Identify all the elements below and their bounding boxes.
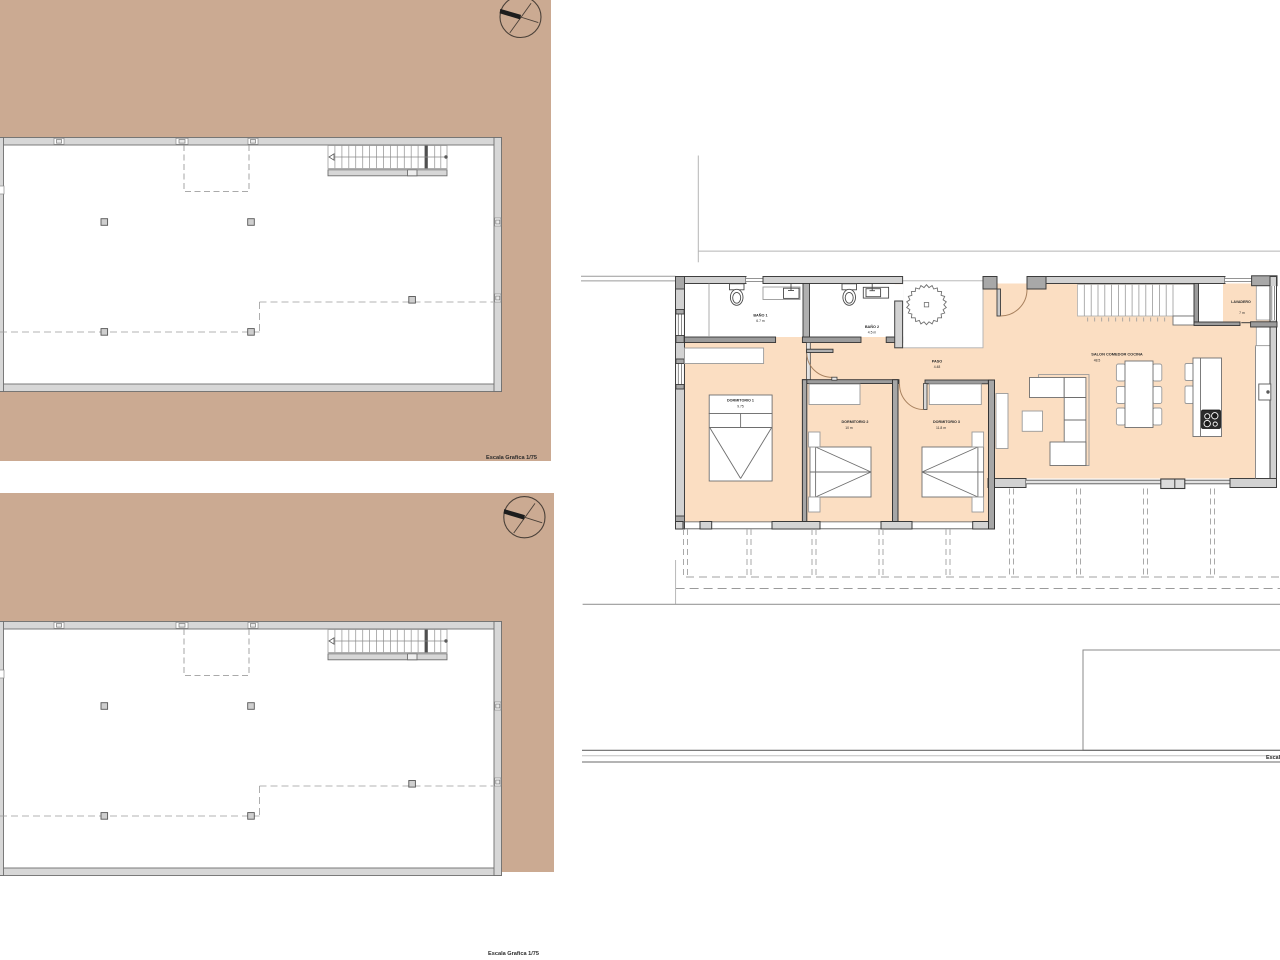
svg-text:4.48: 4.48: [934, 365, 941, 369]
svg-text:6.7 m: 6.7 m: [756, 319, 765, 323]
svg-text:BAÑO 1: BAÑO 1: [753, 313, 767, 318]
svg-text:DORMITORIO 3: DORMITORIO 3: [933, 420, 960, 424]
svg-text:Escala Grafica 1/75: Escala Grafica 1/75: [1266, 755, 1280, 761]
svg-text:PASO: PASO: [932, 360, 943, 364]
svg-text:DORMITORIO 1: DORMITORIO 1: [727, 399, 754, 403]
svg-text:10 m: 10 m: [845, 426, 853, 430]
svg-text:9.75: 9.75: [737, 404, 744, 408]
svg-text:11.8 m: 11.8 m: [936, 426, 946, 430]
svg-text:BAÑO 2: BAÑO 2: [865, 324, 879, 329]
svg-text:LAVADERO: LAVADERO: [1231, 300, 1251, 304]
svg-text:48.5: 48.5: [1094, 359, 1101, 363]
svg-text:Escala Grafica 1/75: Escala Grafica 1/75: [486, 455, 537, 461]
svg-text:SALON COMEDOR COCINA: SALON COMEDOR COCINA: [1091, 352, 1143, 357]
svg-text:4.5 m: 4.5 m: [868, 330, 877, 334]
svg-text:7 m: 7 m: [1239, 311, 1245, 315]
svg-text:DORMITORIO 2: DORMITORIO 2: [842, 420, 869, 424]
svg-text:Escala Grafica 1/75: Escala Grafica 1/75: [488, 951, 539, 957]
